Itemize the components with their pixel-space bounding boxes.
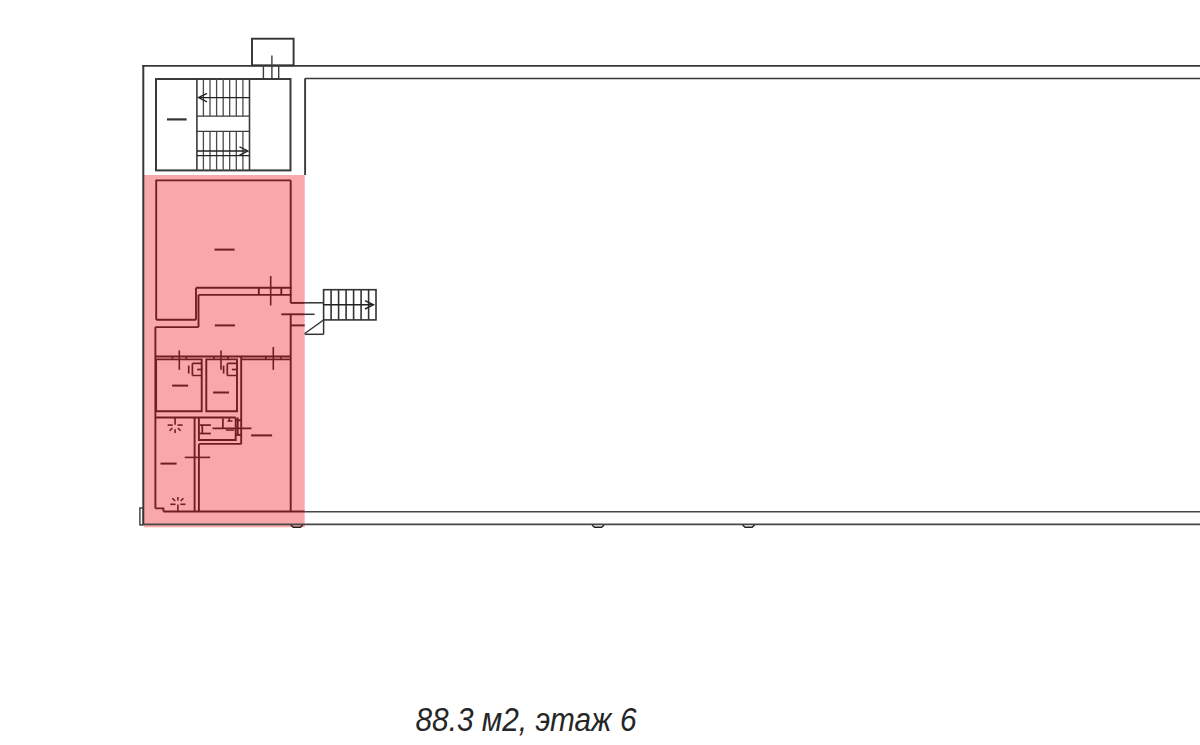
svg-text:88.3 м2, этаж 6: 88.3 м2, этаж 6 — [416, 701, 637, 738]
